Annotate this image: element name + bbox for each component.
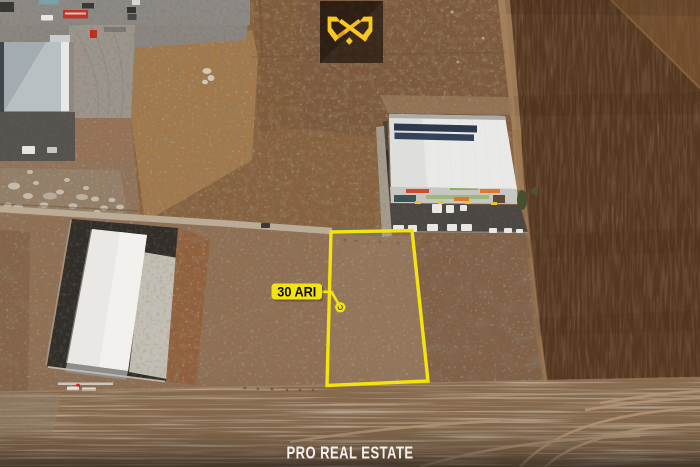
svg-text:30 ARI: 30 ARI <box>277 284 316 300</box>
svg-text:PRO REAL ESTATE: PRO REAL ESTATE <box>287 443 414 463</box>
